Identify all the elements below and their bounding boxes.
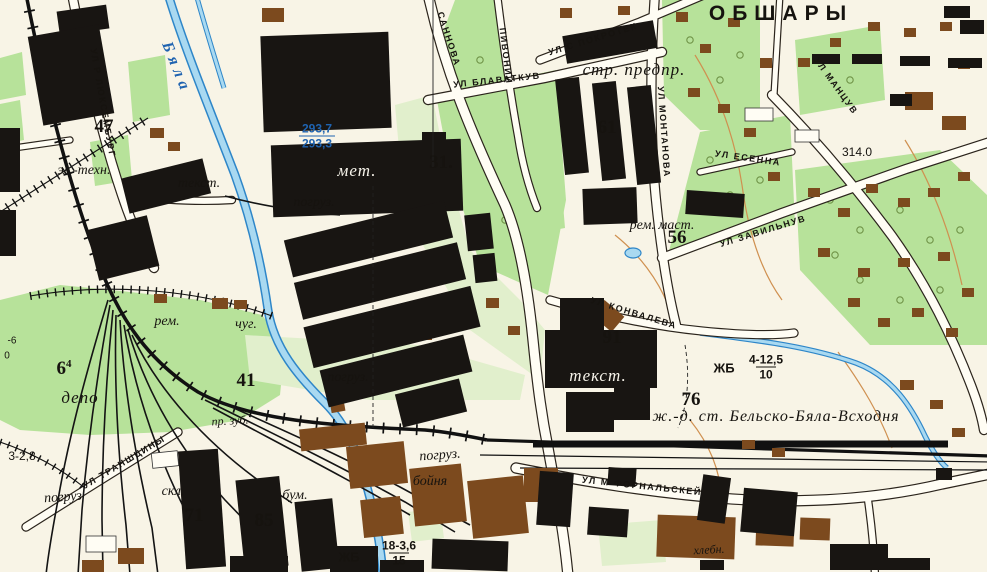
- topographic-map[interactable]: ОБШАРЫ ж.-д. ст. Бельско-Бяла-Всходня 47…: [0, 0, 987, 572]
- map-base-layer: [0, 0, 987, 572]
